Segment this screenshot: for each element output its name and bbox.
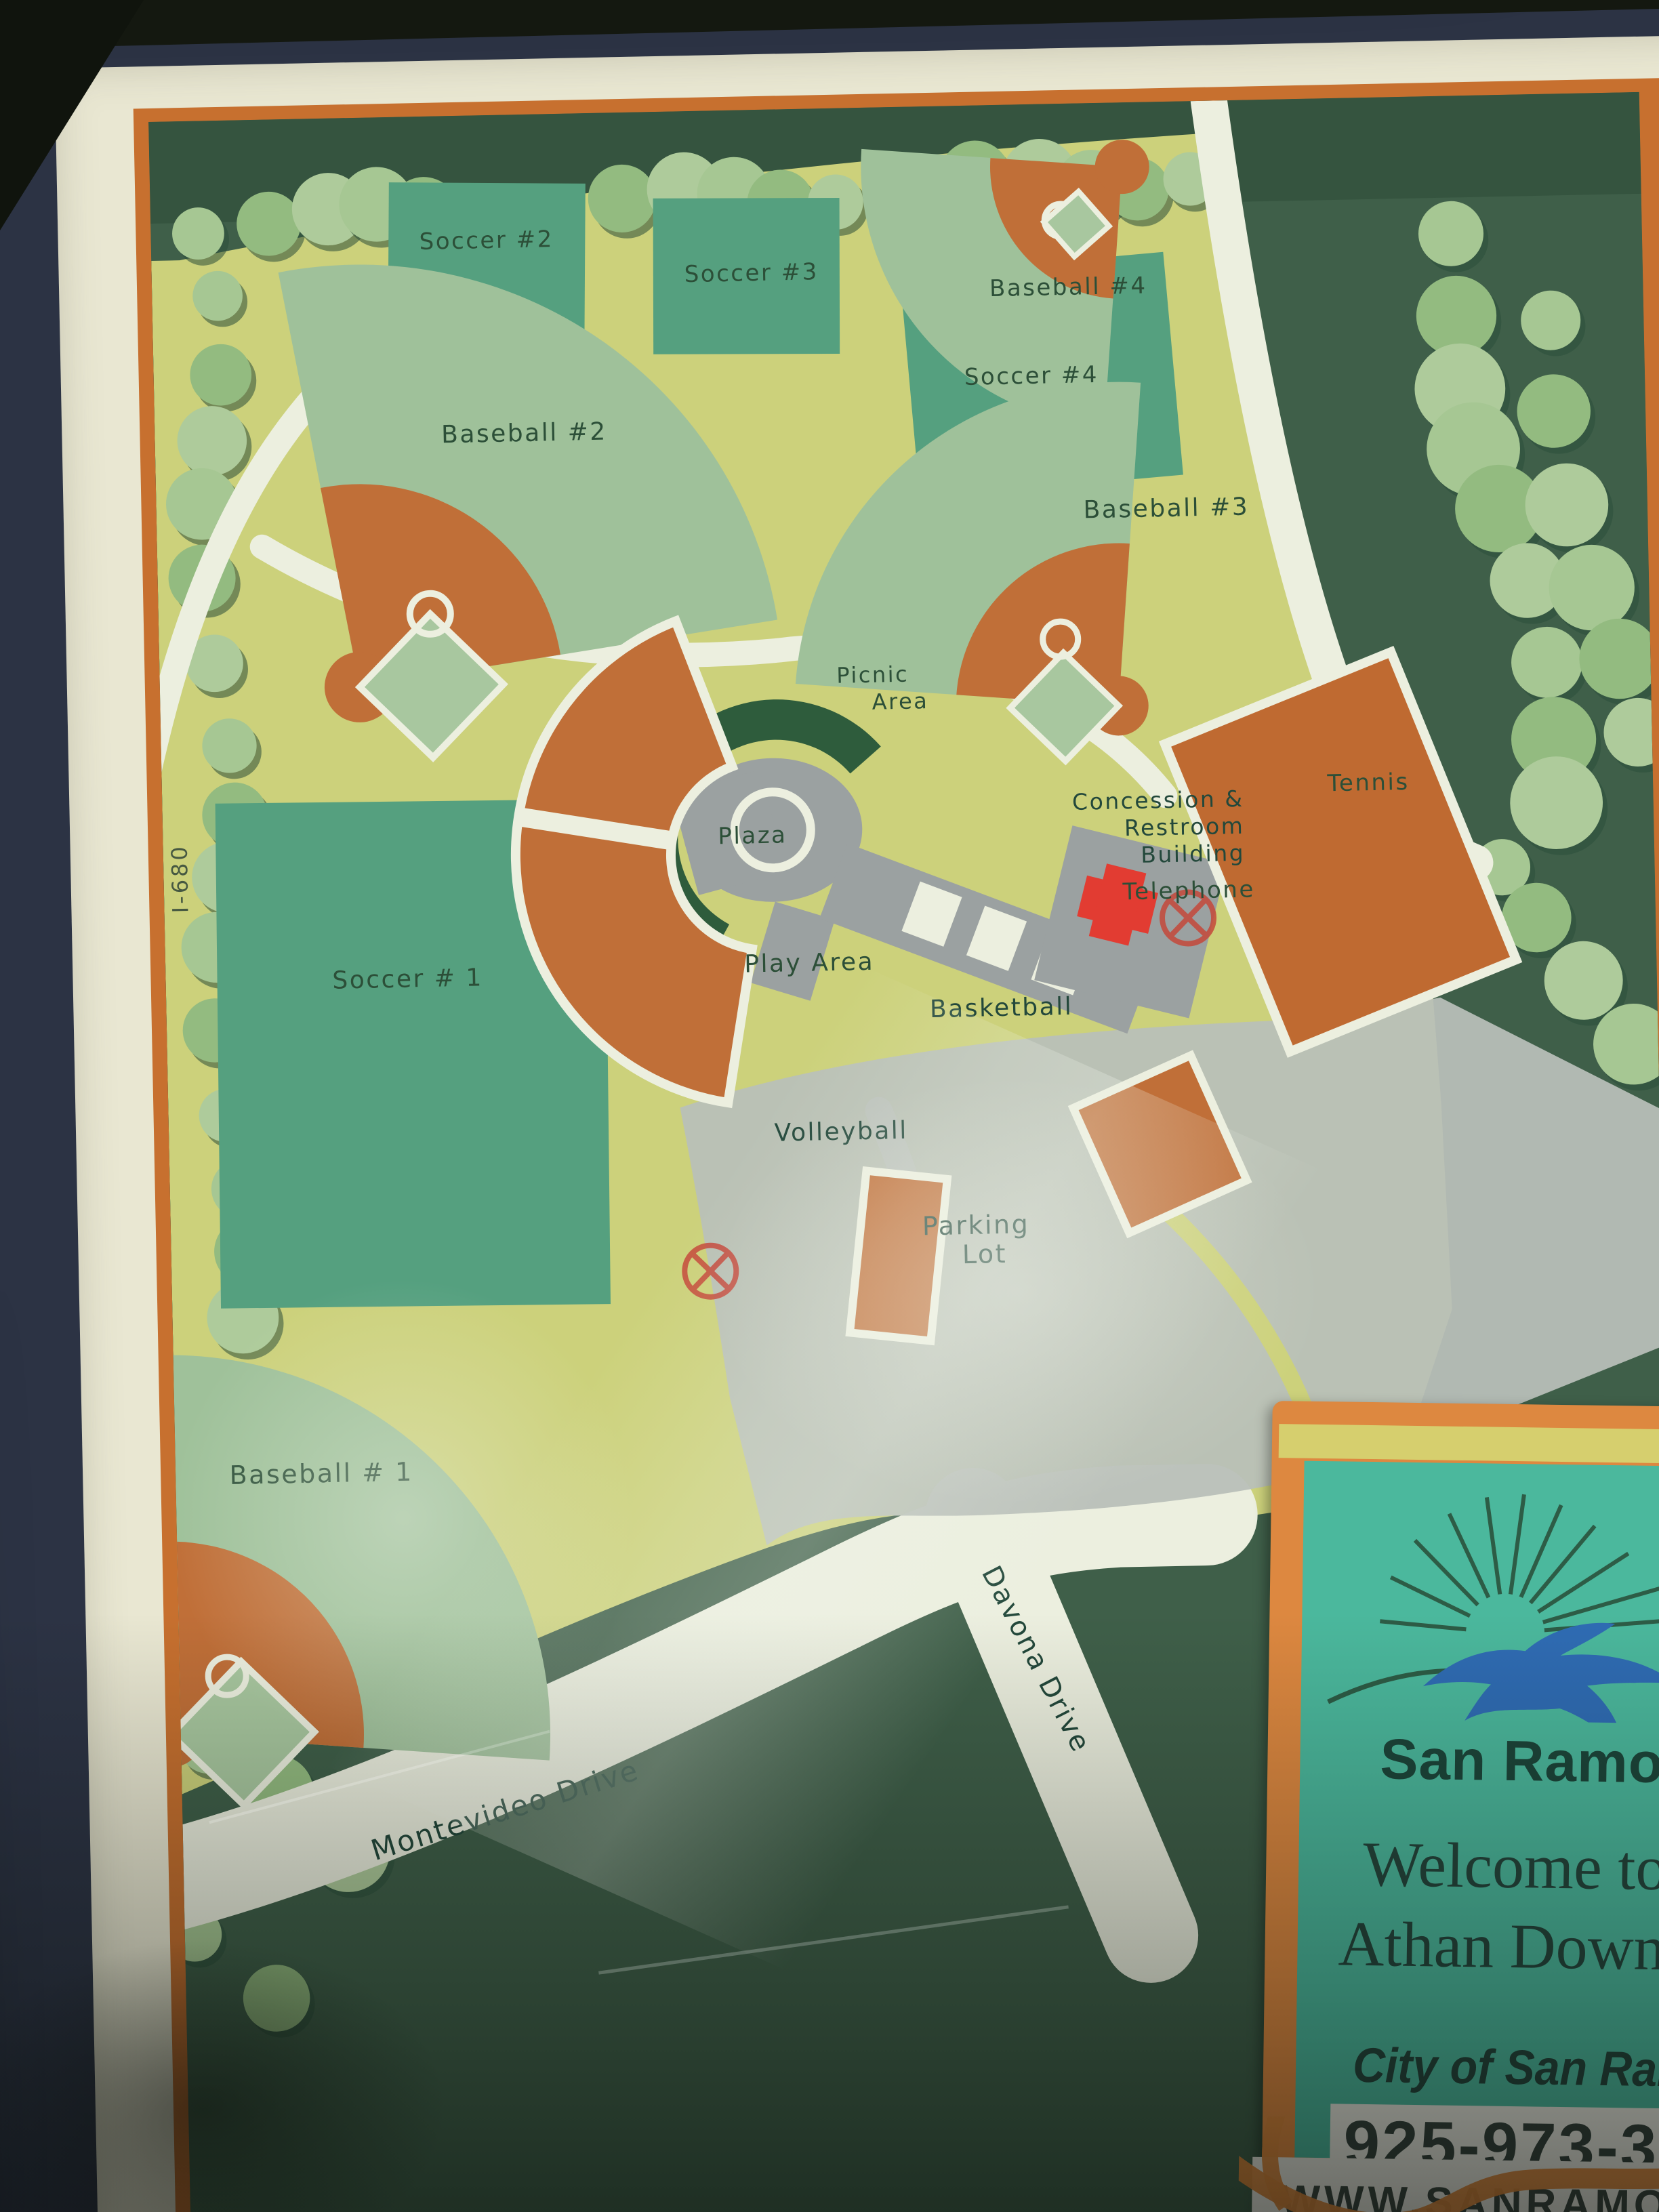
label-plaza: Plaza <box>718 821 787 850</box>
label-baseball-4: Baseball #4 <box>989 272 1147 302</box>
label-soccer-4: Soccer #4 <box>964 361 1099 391</box>
san-ramon-placard: San Ramon Welcome to Athan Downs City of… <box>1261 1393 1659 2212</box>
label-volleyball: Volleyball <box>774 1117 908 1147</box>
san-ramon-logo <box>1321 1475 1659 1725</box>
label-i680-freeway: I-680 <box>167 883 317 913</box>
label-picnic-1: Picnic <box>836 661 909 689</box>
label-basketball: Basketball <box>930 993 1073 1023</box>
label-soccer-2: Soccer #2 <box>419 226 554 255</box>
label-concession-3: Building <box>1141 840 1246 868</box>
label-play-area: Play Area <box>744 948 875 979</box>
label-telephone: Telephone <box>1122 876 1255 905</box>
label-soccer-3: Soccer #3 <box>684 258 819 288</box>
label-baseball-1: Baseball # 1 <box>229 1457 413 1490</box>
label-concession-1: Concession & <box>1072 785 1244 815</box>
park-map-sign-photo: Soccer #2 Soccer #3 Baseball #4 Soccer #… <box>0 0 1659 2212</box>
orange-cord <box>1237 2116 1659 2212</box>
label-concession-2: Restroom <box>1124 813 1245 842</box>
label-picnic-2: Area <box>872 688 928 715</box>
label-baseball-3: Baseball #3 <box>1083 493 1249 525</box>
label-baseball-2: Baseball #2 <box>441 418 607 449</box>
sign-welcome-line2: Athan Downs <box>1338 1907 1659 1985</box>
volleyball-court <box>850 1171 947 1341</box>
placard-yellow-strip <box>1279 1424 1659 1465</box>
sign-attribution: City of San Ramon <box>1353 2038 1659 2099</box>
label-parking-1: Parking <box>922 1209 1029 1241</box>
placard-face: San Ramon Welcome to Athan Downs City of… <box>1294 1461 1659 2164</box>
label-parking-2: Lot <box>962 1239 1007 1269</box>
label-tennis: Tennis <box>1326 769 1410 797</box>
label-soccer-1: Soccer # 1 <box>332 964 483 994</box>
sign-city-name: San Ramon <box>1380 1726 1659 1797</box>
website-strip: WWW.SANRAMON.CA <box>1252 2157 1659 2212</box>
sign-welcome-line1: Welcome to <box>1363 1828 1659 1905</box>
